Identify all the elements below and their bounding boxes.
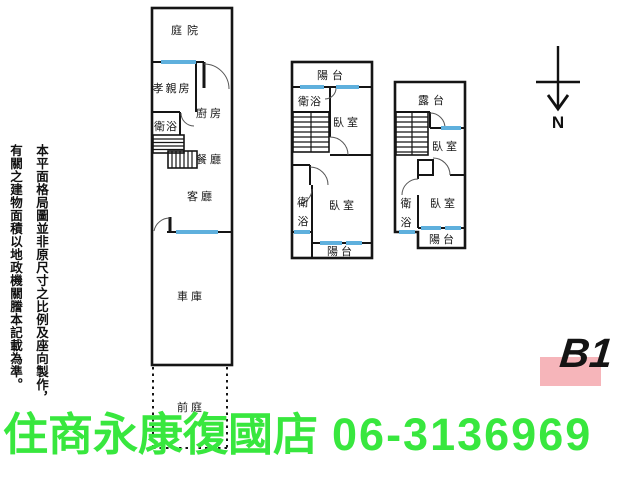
plan-2f-outline bbox=[292, 62, 372, 258]
room-label-bath-front-2f: 衛浴 bbox=[298, 95, 322, 108]
north-label: N bbox=[552, 113, 564, 132]
north-arrow-icon bbox=[536, 46, 580, 109]
room-label-bedroom-rear-3f: 臥室 bbox=[430, 196, 458, 210]
room-label-bath-rear-2f-char1: 衛 bbox=[298, 196, 309, 209]
plan-1f bbox=[152, 8, 232, 448]
plan-2f bbox=[292, 62, 372, 258]
door-arcs-3f bbox=[402, 113, 450, 195]
room-label-parents-room: 孝親房 bbox=[153, 82, 192, 95]
disclaimer-column-right: 本平面格局圖並非原尺寸之比例及座向製作， bbox=[28, 144, 54, 424]
room-label-garage: 車庫 bbox=[177, 289, 205, 303]
room-label-dining: 餐廳 bbox=[196, 152, 224, 166]
room-label-bedroom-front-2f: 臥室 bbox=[333, 115, 361, 129]
agency-banner: 住商永康復國店06-3136969 bbox=[3, 408, 592, 462]
floorplan-page: 庭院 孝親房 廚房 衛浴 餐廳 客廳 車庫 前庭 陽台 衛浴 臥室 衛 浴 bbox=[0, 0, 640, 480]
room-label-bathroom-1f: 衛浴 bbox=[154, 120, 178, 133]
room-label-balcony-3f: 陽台 bbox=[429, 232, 457, 246]
agency-phone-number: 06-3136969 bbox=[332, 409, 592, 460]
plan-1f-labels: 庭院 孝親房 廚房 衛浴 餐廳 客廳 車庫 前庭 bbox=[153, 23, 225, 414]
room-label-bath-3f-char2: 浴 bbox=[401, 216, 412, 229]
room-label-balcony-rear-2f: 陽台 bbox=[327, 244, 355, 258]
room-label-courtyard: 庭院 bbox=[171, 23, 203, 37]
room-label-kitchen: 廚房 bbox=[196, 106, 224, 120]
room-label-bedroom-front-3f: 臥室 bbox=[432, 139, 460, 153]
agency-store-name: 住商永康復國店 bbox=[3, 409, 318, 460]
room-label-bedroom-rear-2f: 臥室 bbox=[329, 198, 357, 212]
room-label-bath-rear-2f-char2: 浴 bbox=[298, 215, 309, 228]
disclaimer-column-left: 有關之建物面積以地政機關謄本記載為準。 bbox=[2, 144, 28, 424]
closet-3f bbox=[418, 160, 433, 175]
disclaimer-text: 本平面格局圖並非原尺寸之比例及座向製作， 有關之建物面積以地政機關謄本記載為準。 bbox=[8, 144, 54, 424]
floor-badge: B1 bbox=[540, 336, 610, 392]
room-label-terrace: 露台 bbox=[418, 93, 448, 107]
floor-badge-label: B1 bbox=[558, 333, 615, 374]
room-label-bath-3f-char1: 衛 bbox=[401, 197, 412, 210]
room-label-living: 客廳 bbox=[187, 189, 215, 203]
room-label-balcony-front-2f: 陽台 bbox=[317, 68, 347, 82]
